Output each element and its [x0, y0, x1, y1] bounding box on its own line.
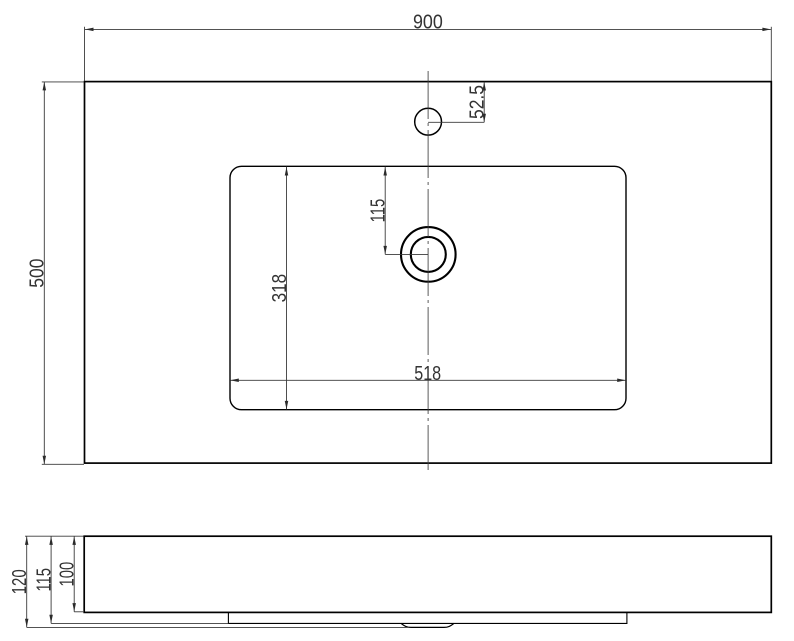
svg-text:518: 518: [414, 363, 441, 385]
svg-text:500: 500: [27, 259, 49, 288]
svg-text:100: 100: [57, 562, 79, 587]
svg-text:52.5: 52.5: [467, 85, 489, 119]
svg-text:318: 318: [269, 274, 291, 303]
svg-text:900: 900: [413, 12, 443, 34]
svg-text:115: 115: [368, 199, 390, 223]
svg-text:115: 115: [34, 568, 56, 592]
svg-text:120: 120: [9, 569, 31, 594]
